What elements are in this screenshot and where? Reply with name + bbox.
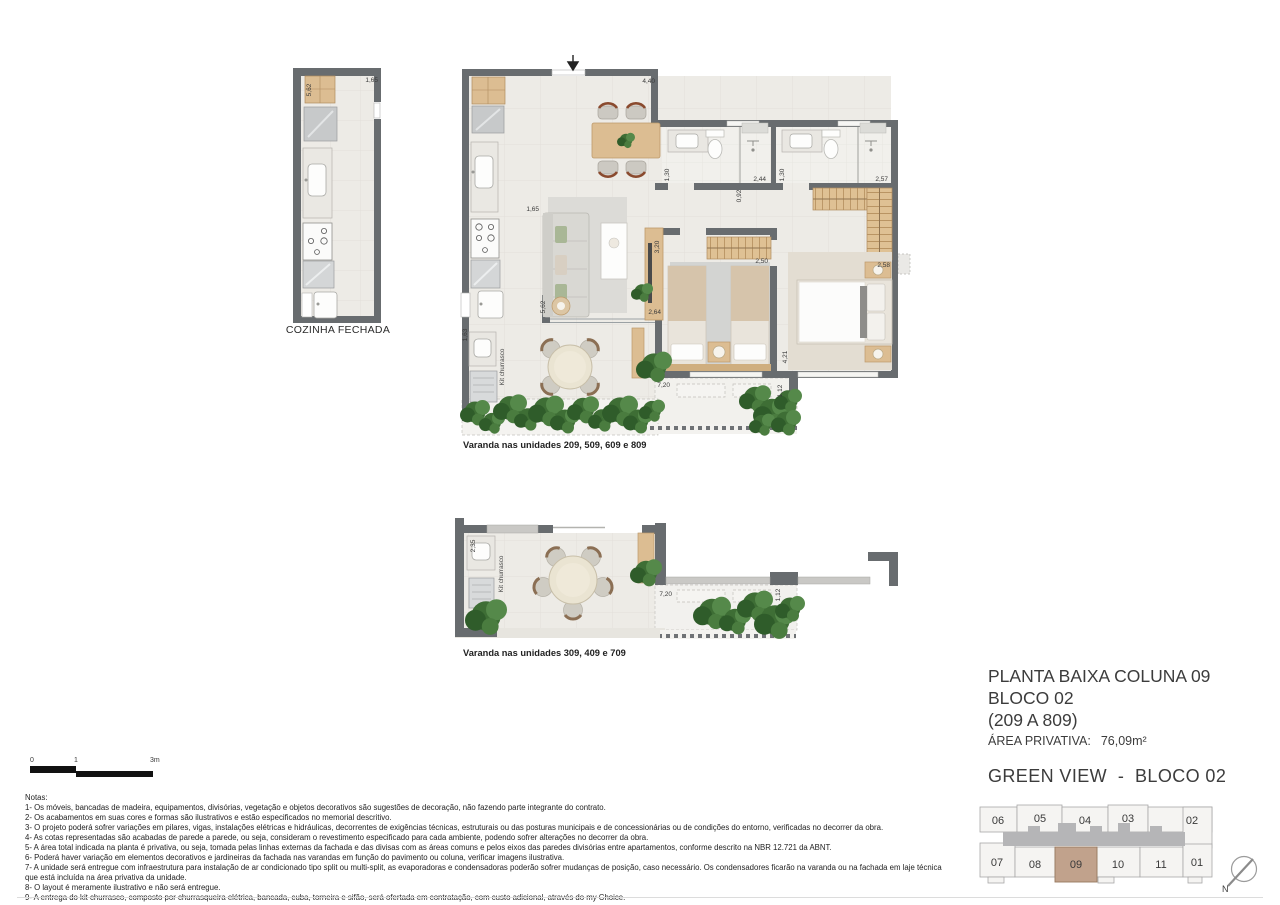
- note-line: 7- A unidade será entregue com infraestr…: [25, 863, 942, 873]
- kitchen-cabinet: [472, 77, 505, 104]
- note-line: 8- O layout é meramente ilustrativo e nã…: [25, 883, 942, 893]
- kitchen-tank: [478, 291, 503, 318]
- note-line: 4- As cotas representadas são acabadas d…: [25, 833, 942, 843]
- scale-segment: [30, 766, 76, 773]
- unit-label: 11: [1155, 859, 1166, 871]
- project-title: GREEN VIEW - BLOCO 02: [988, 766, 1226, 787]
- north-label: N: [1222, 884, 1229, 894]
- kit-churrasco-label: Kit churrasco: [498, 555, 505, 592]
- kitchen-stove: [471, 219, 499, 258]
- notes-block: Notas: 1- Os móveis, bancadas de madeira…: [25, 793, 942, 903]
- dim-label: 7,20: [657, 382, 670, 389]
- kitchen-sink-counter: [471, 142, 498, 212]
- cozinha-fridge: [304, 107, 337, 141]
- kit-churrasco-label: Kit churrasco: [499, 348, 506, 385]
- dim-label: 1,63: [462, 328, 469, 341]
- varanda-main-caption: Varanda nas unidades 209, 509, 609 e 809: [463, 440, 646, 450]
- main-floor-plan: 4,40 1,30 2,44 1,30 2,57 0,92 1,65 3,20 …: [450, 48, 920, 448]
- unit-label: 04: [1079, 815, 1091, 827]
- cozinha-service-panel: [302, 293, 312, 317]
- notes-heading: Notas:: [25, 793, 942, 803]
- bedroom-2: [788, 252, 892, 370]
- footer-rule: [17, 897, 1263, 898]
- scale-segment: [76, 771, 153, 777]
- dim-label: 1,12: [775, 588, 782, 601]
- scale-tick: 1: [74, 757, 78, 764]
- dim-label: 0,92: [736, 189, 743, 202]
- plan-title-line1: PLANTA BAIXA COLUNA 09: [988, 665, 1210, 687]
- side-table-lamp: [552, 297, 570, 315]
- unit-label: 02: [1186, 815, 1198, 827]
- varanda-alt-caption: Varanda nas unidades 309, 409 e 709: [463, 648, 626, 658]
- private-area-value: 76,09m²: [1091, 734, 1147, 748]
- plan-title-line2: BLOCO 02: [988, 687, 1210, 709]
- dim-label: 2,35: [470, 539, 477, 552]
- unit-label: 05: [1034, 813, 1046, 825]
- varanda-table: [538, 336, 601, 397]
- unit-label: 10: [1112, 859, 1124, 871]
- kitchen-washer: [471, 260, 500, 288]
- dim-label: 2,58: [877, 262, 890, 269]
- dim-label: 5,62: [306, 83, 313, 96]
- entry-arrow-icon: [568, 55, 578, 70]
- dim-label: 1,30: [779, 168, 786, 181]
- dim-label: 1,30: [664, 168, 671, 181]
- dim-label: 2,50: [755, 258, 768, 265]
- varanda-alt-plan: 2,35 Kit churrasco 7,20 1,12: [440, 508, 920, 648]
- note-line: 9- A entrega do kit churrasco, composto …: [25, 893, 942, 903]
- dim-label: 1,65: [526, 206, 539, 213]
- bedroom-1: [666, 262, 771, 371]
- dim-label: 1,65: [365, 77, 378, 84]
- title-block: PLANTA BAIXA COLUNA 09 BLOCO 02 (209 A 8…: [988, 665, 1210, 748]
- private-area: ÁREA PRIVATIVA:76,09m²: [988, 734, 1210, 748]
- coffee-table: [601, 223, 627, 279]
- note-line: 3- O projeto poderá sofrer variações em …: [25, 823, 942, 833]
- cozinha-caption: COZINHA FECHADA: [283, 324, 393, 336]
- condenser-area: [677, 384, 725, 397]
- dim-label: 2,64: [648, 309, 661, 316]
- dim-label: 2,57: [875, 176, 888, 183]
- note-line: 5- A área total indicada na planta é pri…: [25, 843, 942, 853]
- dim-label: 7,20: [659, 591, 672, 598]
- dim-label: 5,62: [540, 300, 547, 313]
- key-plan-corridor: [1003, 823, 1185, 846]
- scale-tick: 0: [30, 757, 34, 764]
- dim-label: 1,12: [777, 384, 784, 397]
- dim-label: 2,44: [753, 176, 766, 183]
- north-compass-icon: N: [1215, 848, 1270, 898]
- private-area-label: ÁREA PRIVATIVA:: [988, 734, 1091, 748]
- unit-label: 06: [992, 815, 1004, 827]
- kitchen-fridge: [472, 106, 504, 133]
- cozinha-tank: [314, 292, 337, 318]
- note-line: 1- Os móveis, bancadas de madeira, equip…: [25, 803, 942, 813]
- cozinha-fechada-plan: 5,62 1,65: [283, 58, 400, 348]
- cozinha-counter-sink: [303, 148, 332, 218]
- floor-plan-sheet: 5,62 1,65 COZINHA FECHADA: [0, 0, 1280, 905]
- note-line: que está incluída na área privativa da u…: [25, 873, 942, 883]
- dim-label: 4,40: [642, 78, 655, 85]
- unit-label: 07: [991, 857, 1003, 869]
- unit-label-highlighted: 09: [1070, 859, 1082, 871]
- dim-label: 3,20: [654, 240, 661, 253]
- unit-label: 08: [1029, 859, 1041, 871]
- unit-label: 03: [1122, 813, 1134, 825]
- cozinha-stove: [303, 223, 332, 260]
- key-plan: 06 05 04 03 02 07 08 09 10 11 01: [975, 798, 1220, 893]
- dim-label: 4,21: [782, 350, 789, 363]
- scale-tick: 3m: [150, 757, 160, 764]
- note-line: 6- Poderá haver variação em elementos de…: [25, 853, 942, 863]
- plan-title-line3: (209 A 809): [988, 709, 1210, 731]
- unit-label: 01: [1191, 857, 1203, 869]
- scale-bar: 0 1 3m: [20, 752, 180, 784]
- cozinha-door-opening: [374, 103, 380, 118]
- cozinha-washer: [303, 261, 334, 288]
- note-line: 2- Os acabamentos em suas cores e formas…: [25, 813, 942, 823]
